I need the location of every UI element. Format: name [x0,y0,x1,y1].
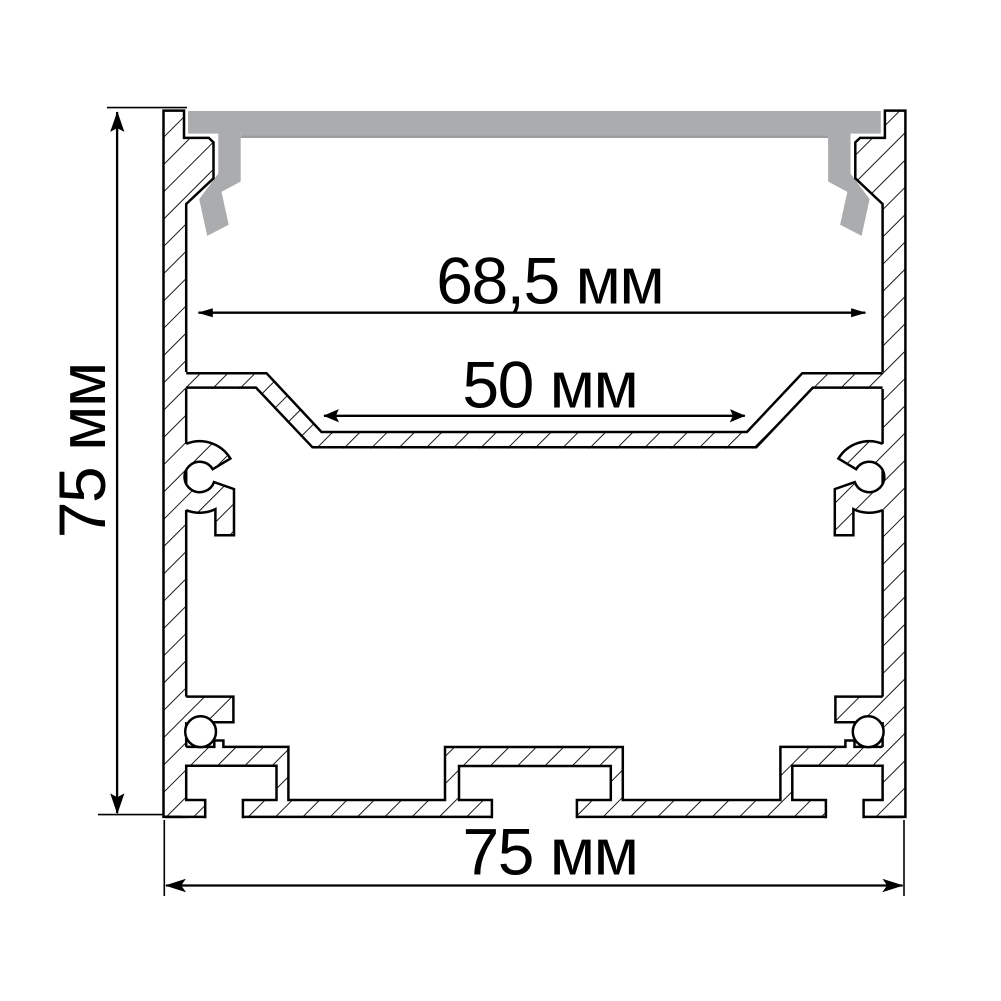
svg-text:75 мм: 75 мм [463,815,638,889]
svg-text:75 мм: 75 мм [45,363,119,538]
svg-text:50 мм: 50 мм [462,348,637,422]
svg-text:68,5 мм: 68,5 мм [436,243,663,317]
